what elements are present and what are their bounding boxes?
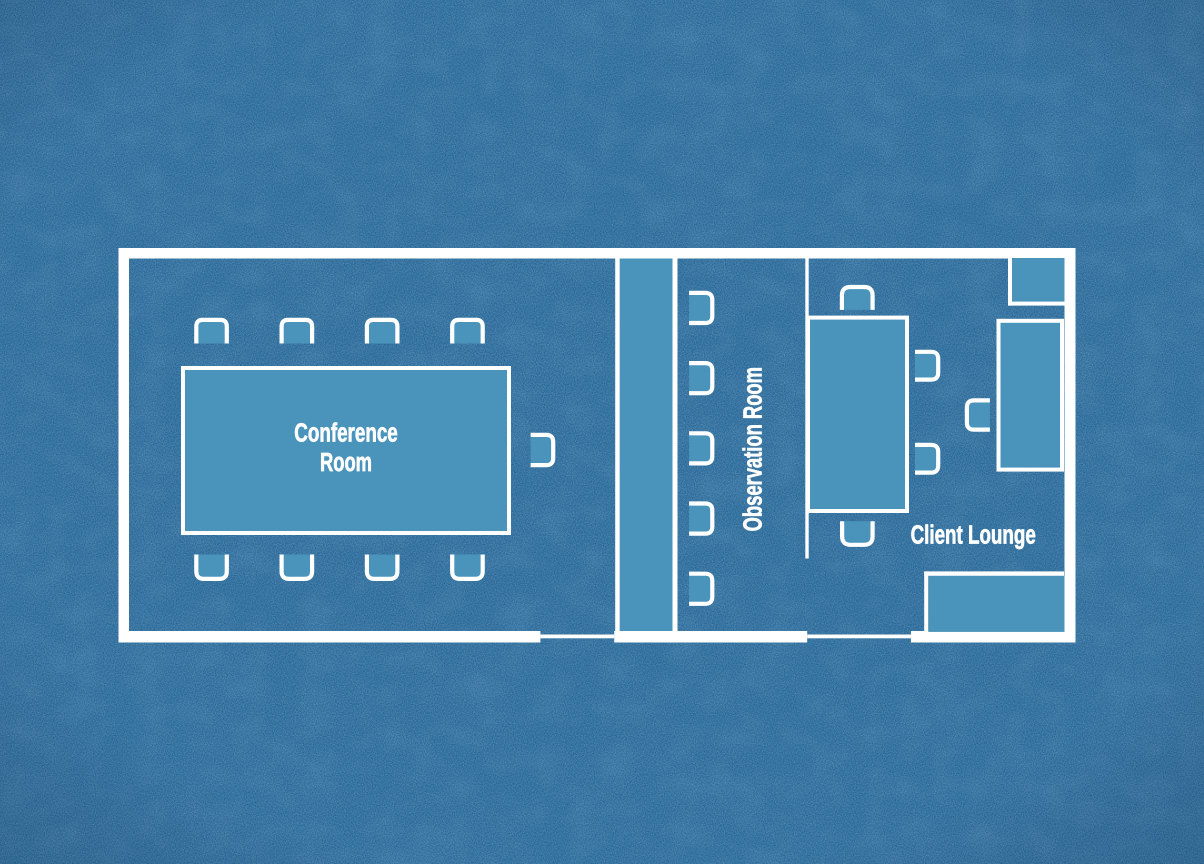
svg-text:Observation Room: Observation Room xyxy=(739,367,767,531)
svg-text:Client Lounge: Client Lounge xyxy=(911,522,1036,550)
svg-text:Room: Room xyxy=(320,449,372,477)
svg-text:Conference: Conference xyxy=(294,420,398,448)
